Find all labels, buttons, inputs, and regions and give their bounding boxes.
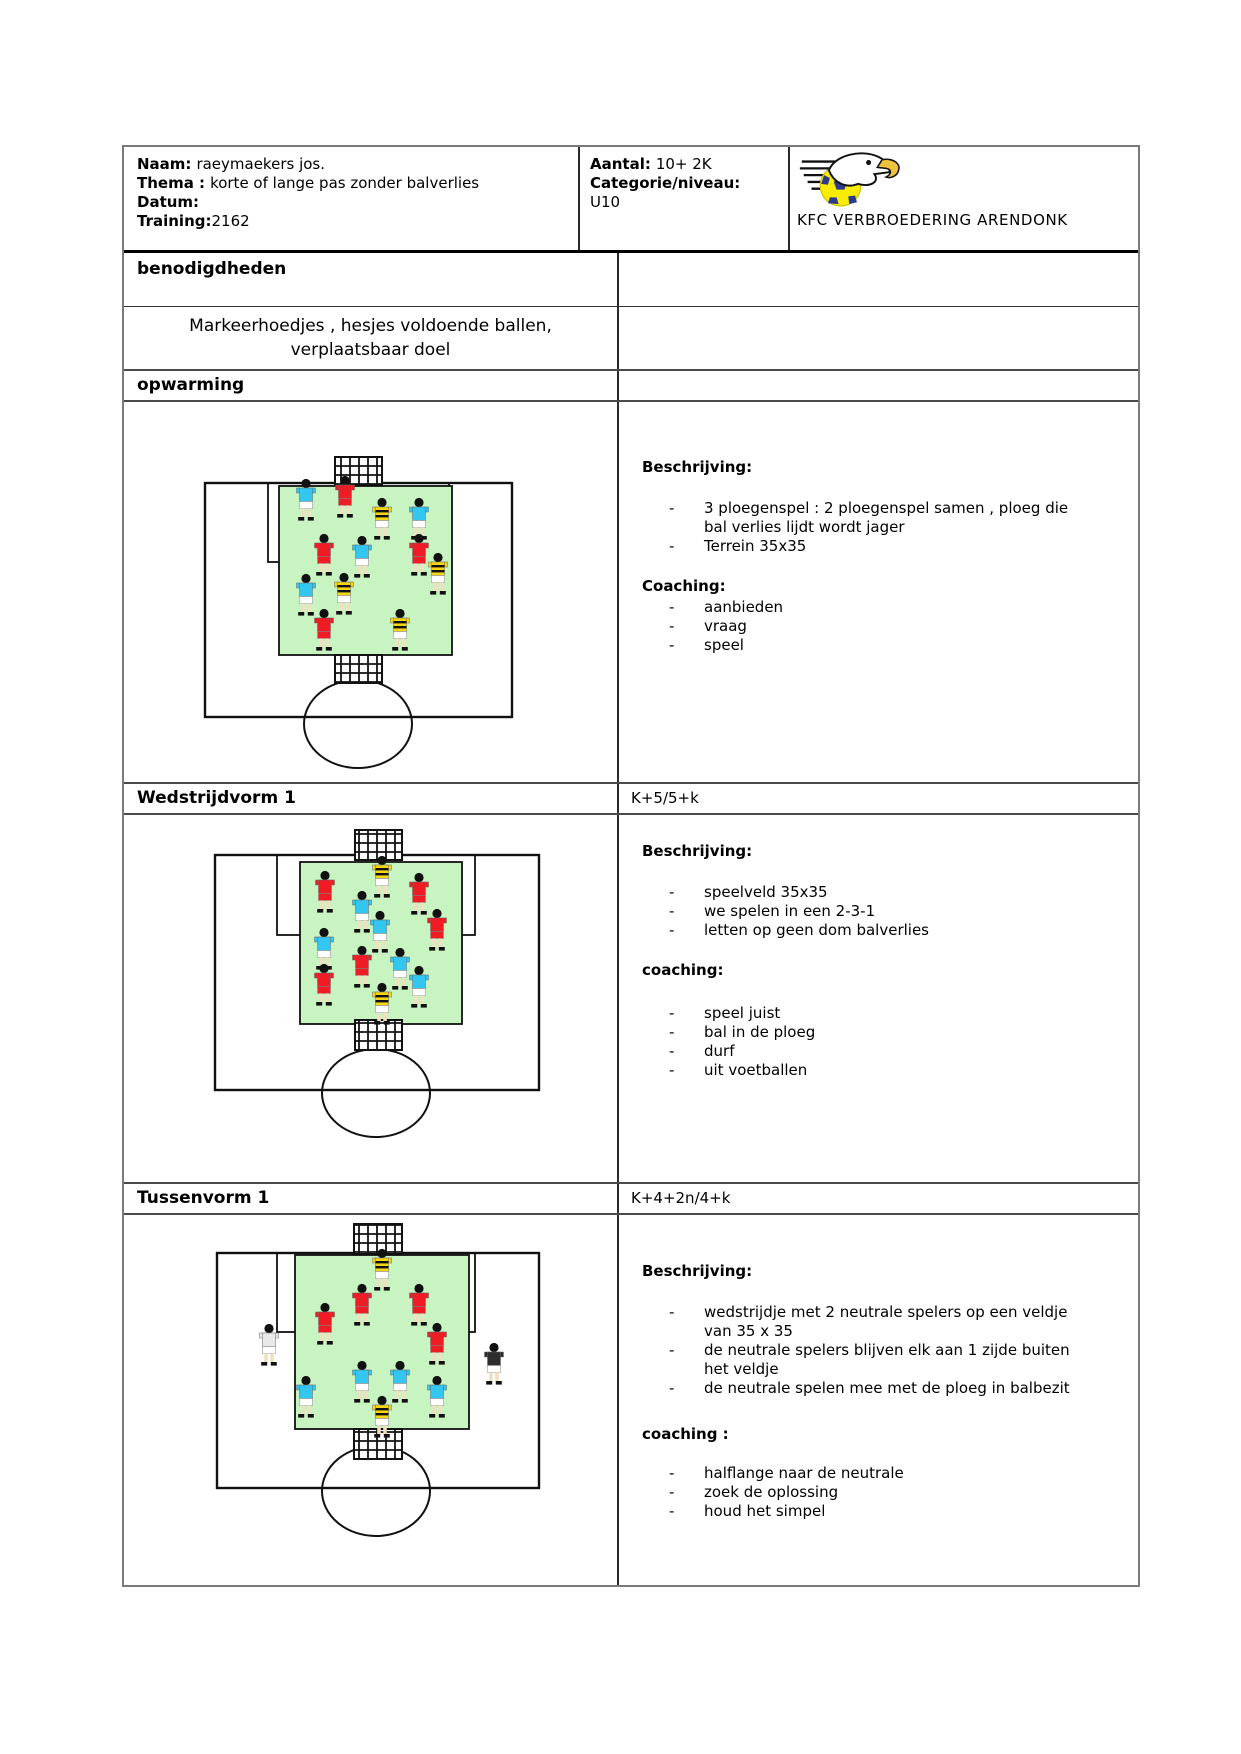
- bullet-item: -vraag: [669, 617, 1138, 636]
- wedstrijdvorm-content-row: Beschrijving: -speelveld 35x35-we spelen…: [124, 815, 1138, 1184]
- tussenvorm-content-row: Beschrijving: -wedstrijdje met 2 neutral…: [124, 1215, 1138, 1585]
- bullet-dash: -: [669, 1061, 704, 1080]
- bullet-dash: -: [669, 1004, 704, 1023]
- wedstrijdvorm-field-diagram: [124, 815, 619, 1182]
- tussenvorm-field-diagram: [124, 1215, 619, 1585]
- benodigdheden-empty-cell: [619, 253, 1138, 306]
- wedstrijdvorm-label-row: Wedstrijdvorm 1 K+5/5+k: [124, 784, 1138, 815]
- aantal-value: 10+ 2K: [656, 155, 712, 173]
- bullet-item: -Terrein 35x35: [669, 537, 1138, 556]
- training-sheet: Naam:raeymaekers jos. Thema :korte of la…: [122, 145, 1140, 1587]
- naam-label: Naam:: [137, 155, 191, 173]
- bullet-item: -speelveld 35x35: [669, 883, 1138, 902]
- materials-empty-cell: [619, 307, 1138, 369]
- bullet-text: speelveld 35x35: [704, 883, 828, 902]
- tussenvorm-label-row: Tussenvorm 1 K+4+2n/4+k: [124, 1184, 1138, 1215]
- aantal-line: Aantal:10+ 2K: [590, 155, 788, 174]
- bullet-dash: -: [669, 1303, 704, 1341]
- bullet-text: wedstrijdje met 2 neutrale spelers op ee…: [704, 1303, 1067, 1341]
- datum-label: Datum:: [137, 193, 199, 211]
- header-info-cell: Naam:raeymaekers jos. Thema :korte of la…: [124, 147, 580, 250]
- materials-line-1: Markeerhoedjes , hesjes voldoende ballen…: [134, 314, 607, 338]
- categorie-value: U10: [590, 193, 788, 212]
- opwarming-field-diagram: [124, 402, 619, 782]
- datum-line: Datum:: [137, 193, 578, 212]
- beschrijving-heading: Beschrijving:: [642, 457, 1138, 477]
- bullet-text: zoek de oplossing: [704, 1483, 838, 1502]
- bullet-item: -we spelen in een 2-3-1: [669, 902, 1138, 921]
- bullet-dash: -: [669, 1042, 704, 1061]
- header-logo-cell: KFC VERBROEDERING ARENDONK: [790, 147, 1138, 250]
- beschrijving-list: -wedstrijdje met 2 neutrale spelers op e…: [642, 1303, 1138, 1398]
- bullet-item: -uit voetballen: [669, 1061, 1138, 1080]
- bullet-item: -halflange naar de neutrale: [669, 1464, 1138, 1483]
- section-title-opwarming: opwarming: [124, 371, 619, 400]
- bullet-dash: -: [669, 902, 704, 921]
- bullet-text: halflange naar de neutrale: [704, 1464, 904, 1483]
- bullet-text: speel juist: [704, 1004, 780, 1023]
- bullet-item: -3 ploegenspel : 2 ploegenspel samen , p…: [669, 499, 1138, 537]
- materials-text: Markeerhoedjes , hesjes voldoende ballen…: [124, 307, 619, 369]
- bullet-dash: -: [669, 636, 704, 655]
- bullet-item: -de neutrale spelen mee met de ploeg in …: [669, 1379, 1138, 1398]
- bullet-item: -durf: [669, 1042, 1138, 1061]
- training-value: 2162: [211, 212, 249, 230]
- section-subtitle-wedstrijdvorm: K+5/5+k: [619, 784, 1138, 813]
- bullet-item: -wedstrijdje met 2 neutrale spelers op e…: [669, 1303, 1138, 1341]
- beschrijving-list: -3 ploegenspel : 2 ploegenspel samen , p…: [642, 499, 1138, 556]
- bullet-dash: -: [669, 1379, 704, 1398]
- bullet-text: letten op geen dom balverlies: [704, 921, 929, 940]
- bullet-dash: -: [669, 499, 704, 537]
- bullet-text: aanbieden: [704, 598, 783, 617]
- thema-line: Thema :korte of lange pas zonder balverl…: [137, 174, 578, 193]
- bullet-dash: -: [669, 598, 704, 617]
- tussenvorm-description-cell: Beschrijving: -wedstrijdje met 2 neutral…: [619, 1215, 1138, 1585]
- benodigdheden-title: benodigdheden: [124, 253, 619, 306]
- club-logo-icon: [797, 149, 915, 209]
- bullet-text: 3 ploegenspel : 2 ploegenspel samen , pl…: [704, 499, 1068, 537]
- bullet-text: de neutrale spelen mee met de ploeg in b…: [704, 1379, 1070, 1398]
- beschrijving-heading: Beschrijving:: [642, 1261, 1138, 1281]
- bullet-item: -speel: [669, 636, 1138, 655]
- bullet-text: speel: [704, 636, 744, 655]
- bullet-text: houd het simpel: [704, 1502, 825, 1521]
- bullet-item: -bal in de ploeg: [669, 1023, 1138, 1042]
- bullet-text: we spelen in een 2-3-1: [704, 902, 875, 921]
- bullet-text: uit voetballen: [704, 1061, 807, 1080]
- bullet-item: -houd het simpel: [669, 1502, 1138, 1521]
- section-title-tussenvorm: Tussenvorm 1: [124, 1184, 619, 1213]
- wedstrijdvorm-description-cell: Beschrijving: -speelveld 35x35-we spelen…: [619, 815, 1138, 1182]
- coaching-heading: coaching :: [642, 1424, 1138, 1444]
- bullet-item: -letten op geen dom balverlies: [669, 921, 1138, 940]
- bullet-dash: -: [669, 1502, 704, 1521]
- opwarming-diagram-cell: [124, 402, 619, 782]
- thema-label: Thema :: [137, 174, 205, 192]
- coaching-heading: Coaching:: [642, 576, 1138, 596]
- materials-row: Markeerhoedjes , hesjes voldoende ballen…: [124, 307, 1138, 371]
- beschrijving-list: -speelveld 35x35-we spelen in een 2-3-1-…: [642, 883, 1138, 940]
- header-aantal-cell: Aantal:10+ 2K Categorie/niveau: U10: [580, 147, 790, 250]
- section-title-wedstrijdvorm: Wedstrijdvorm 1: [124, 784, 619, 813]
- categorie-label: Categorie/niveau:: [590, 174, 740, 192]
- section-subtitle-opwarming: [619, 371, 1138, 400]
- bullet-item: -aanbieden: [669, 598, 1138, 617]
- bullet-text: durf: [704, 1042, 734, 1061]
- coaching-list: -aanbieden-vraag-speel: [642, 598, 1138, 655]
- bullet-item: -de neutrale spelers blijven elk aan 1 z…: [669, 1341, 1138, 1379]
- training-line: Training:2162: [137, 212, 578, 231]
- bullet-dash: -: [669, 1483, 704, 1502]
- bullet-dash: -: [669, 617, 704, 636]
- coaching-list: -speel juist-bal in de ploeg-durf-uit vo…: [642, 1004, 1138, 1080]
- bullet-dash: -: [669, 921, 704, 940]
- bullet-dash: -: [669, 537, 704, 556]
- bullet-item: -speel juist: [669, 1004, 1138, 1023]
- benodigdheden-row: benodigdheden: [124, 253, 1138, 307]
- bullet-dash: -: [669, 1341, 704, 1379]
- bullet-dash: -: [669, 1464, 704, 1483]
- bullet-item: -zoek de oplossing: [669, 1483, 1138, 1502]
- coaching-list: -halflange naar de neutrale-zoek de oplo…: [642, 1464, 1138, 1521]
- club-name: KFC VERBROEDERING ARENDONK: [797, 211, 1138, 229]
- opwarming-content-row: Beschrijving: -3 ploegenspel : 2 ploegen…: [124, 402, 1138, 784]
- thema-value: korte of lange pas zonder balverlies: [210, 174, 479, 192]
- aantal-label: Aantal:: [590, 155, 651, 173]
- naam-line: Naam:raeymaekers jos.: [137, 155, 578, 174]
- bullet-dash: -: [669, 883, 704, 902]
- bullet-text: de neutrale spelers blijven elk aan 1 zi…: [704, 1341, 1070, 1379]
- categorie-line: Categorie/niveau:: [590, 174, 788, 193]
- beschrijving-heading: Beschrijving:: [642, 841, 1138, 861]
- tussenvorm-diagram-cell: [124, 1215, 619, 1585]
- materials-line-2: verplaatsbaar doel: [134, 338, 607, 362]
- section-subtitle-tussenvorm: K+4+2n/4+k: [619, 1184, 1138, 1213]
- bullet-text: Terrein 35x35: [704, 537, 806, 556]
- training-label: Training:: [137, 212, 211, 230]
- header-row: Naam:raeymaekers jos. Thema :korte of la…: [124, 147, 1138, 253]
- opwarming-label-row: opwarming: [124, 371, 1138, 402]
- naam-value: raeymaekers jos.: [196, 155, 325, 173]
- coaching-heading: coaching:: [642, 960, 1138, 980]
- bullet-text: vraag: [704, 617, 747, 636]
- bullet-text: bal in de ploeg: [704, 1023, 815, 1042]
- wedstrijdvorm-diagram-cell: [124, 815, 619, 1182]
- bullet-dash: -: [669, 1023, 704, 1042]
- opwarming-description-cell: Beschrijving: -3 ploegenspel : 2 ploegen…: [619, 402, 1138, 782]
